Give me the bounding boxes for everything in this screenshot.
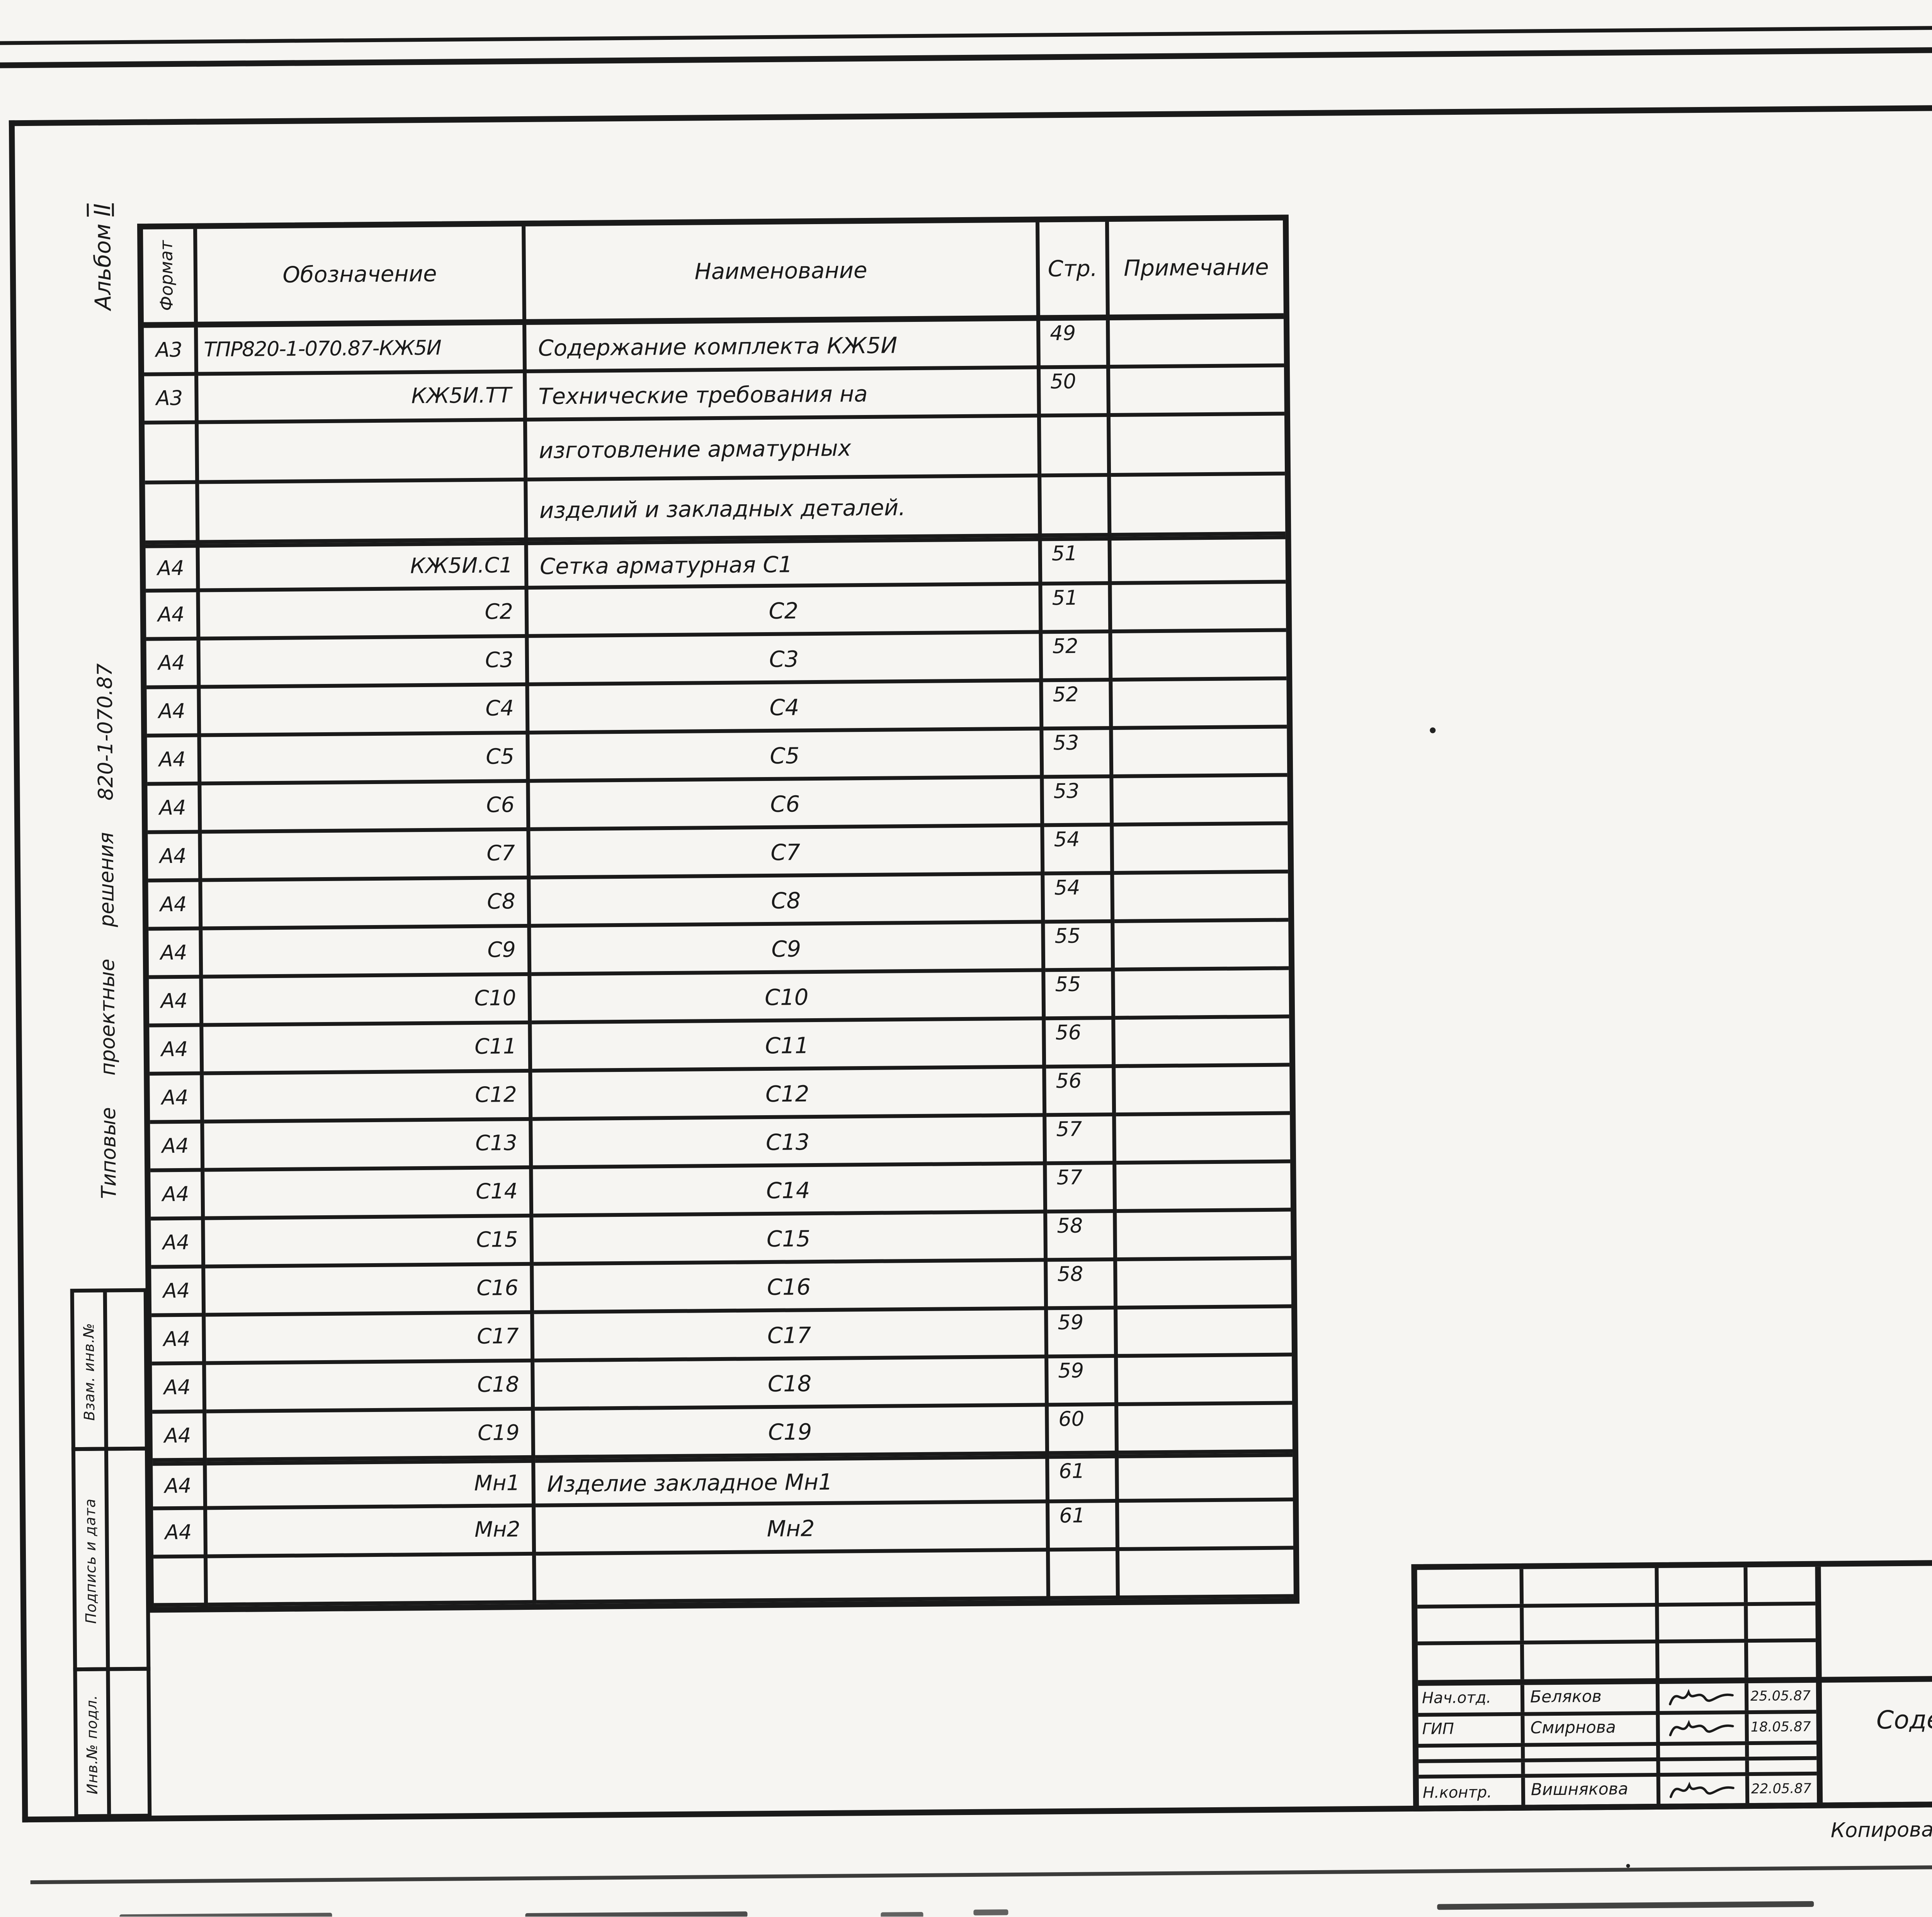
cell-name: С6	[530, 779, 1044, 831]
scan-artifact	[119, 1913, 332, 1917]
cell-designation: С4	[201, 686, 529, 737]
cell-page: 54	[1044, 875, 1114, 924]
cell-format: А4	[151, 1220, 205, 1269]
cell-designation: С13	[204, 1121, 533, 1172]
cell-name: С8	[531, 875, 1045, 927]
cell-name: С17	[534, 1310, 1048, 1362]
cell-name: С4	[529, 682, 1043, 734]
cell-format: А4	[151, 1317, 206, 1365]
cell-designation: С18	[206, 1362, 535, 1414]
cell-note	[1114, 873, 1288, 923]
signature-date	[1749, 1744, 1816, 1756]
stamp-title-cell: Содержание комплекта КЖ5И	[1822, 1678, 1932, 1802]
cell-page: 57	[1047, 1165, 1117, 1213]
cell-designation: ТПР820-1-070.87-КЖ5И	[198, 325, 527, 376]
signature-name: Смирнова	[1524, 1714, 1660, 1742]
header-format: Формат	[143, 229, 198, 328]
signature-mark	[1660, 1713, 1749, 1741]
cell-format	[153, 1558, 208, 1607]
cell-format: А4	[148, 882, 202, 931]
cell-name: Изделие закладное Мн1	[535, 1455, 1049, 1507]
title-stamp: ТПР820-1-070.87 -КЖ5И Нач.отд. Беляков 2…	[1411, 1555, 1932, 1812]
cell-designation: С14	[204, 1169, 533, 1220]
signature-name	[1525, 1745, 1660, 1758]
cell-note	[1116, 1163, 1291, 1213]
cell-format: А4	[147, 786, 202, 834]
cell-note	[1110, 319, 1284, 369]
scan-edge-line	[0, 25, 1932, 45]
cell-name: С13	[532, 1117, 1047, 1169]
cell-format: А4	[145, 544, 200, 593]
cell-format: А4	[146, 592, 200, 641]
cell-name	[536, 1551, 1050, 1604]
cell-format: А4	[149, 979, 203, 1027]
cell-page: 52	[1043, 682, 1113, 730]
cell-page: 54	[1044, 827, 1114, 875]
side-stamp-label: Инв.№ подл.	[83, 1679, 102, 1810]
signature-row: Нач.отд. Беляков 25.05.87	[1418, 1682, 1816, 1716]
cell-designation: С7	[202, 831, 531, 882]
signature-row: Н.контр. Вишнякова 22.05.87	[1419, 1776, 1817, 1806]
cell-designation: С5	[201, 735, 530, 786]
signature-role: ГИП	[1418, 1715, 1525, 1743]
divider	[104, 1451, 110, 1667]
cell-page: 56	[1046, 1068, 1116, 1117]
side-stamp-label: Подпись и дата	[81, 1459, 100, 1664]
cell-name: С7	[530, 827, 1044, 879]
cell-note	[1119, 1550, 1294, 1599]
cell-designation: С19	[206, 1411, 535, 1462]
cell-format: А4	[153, 1461, 207, 1510]
cell-note	[1112, 632, 1286, 682]
signature-date: 25.05.87	[1748, 1682, 1816, 1709]
signature-date: 22.05.87	[1749, 1776, 1817, 1803]
divider	[103, 1292, 108, 1447]
cell-note	[1114, 825, 1288, 875]
scan-artifact	[881, 1912, 923, 1917]
cell-format: А3	[144, 328, 198, 376]
sheet-bottom-edge	[31, 1860, 1932, 1884]
signature-row: ГИП Смирнова 18.05.87	[1418, 1713, 1816, 1747]
cell-note	[1113, 777, 1287, 827]
cell-designation: С17	[206, 1314, 534, 1365]
signature-name: Вишнякова	[1525, 1777, 1661, 1805]
cell-note	[1119, 1501, 1293, 1551]
cell-name: изделий и закладных деталей.	[527, 477, 1042, 541]
cell-page: 50	[1041, 369, 1111, 417]
cell-page: 59	[1048, 1310, 1118, 1358]
signature-mark	[1660, 1760, 1749, 1773]
cell-page: 53	[1044, 778, 1114, 827]
cell-designation: С3	[200, 638, 529, 689]
signature-role: Нач.отд.	[1418, 1684, 1525, 1712]
cell-note	[1111, 475, 1285, 537]
cell-note	[1112, 583, 1286, 633]
cell-format: А4	[148, 834, 202, 883]
cell-page: 60	[1049, 1406, 1119, 1455]
cell-format: А4	[151, 1268, 206, 1317]
cell-name: Технические требования на	[527, 369, 1041, 421]
cell-format: А4	[150, 1123, 204, 1172]
signature-mark	[1660, 1744, 1749, 1757]
signature-date	[1749, 1760, 1816, 1772]
header-note: Примечание	[1109, 220, 1284, 320]
cell-format: А4	[148, 930, 203, 979]
frame-left	[9, 120, 27, 1822]
cell-name: Сетка арматурная С1	[528, 537, 1042, 589]
header-name: Наименование	[526, 222, 1040, 325]
cell-designation: С16	[205, 1266, 534, 1317]
cell-format: А4	[146, 689, 201, 738]
stamp-empty-grid	[1417, 1567, 1816, 1680]
cell-note	[1117, 1260, 1291, 1310]
cell-name: С3	[529, 634, 1043, 686]
cell-page: 55	[1045, 923, 1115, 972]
signature-role	[1418, 1762, 1525, 1774]
cell-designation: Мн1	[207, 1459, 536, 1510]
cell-designation: С6	[201, 783, 530, 834]
cell-designation	[199, 422, 527, 484]
cell-designation: С8	[202, 879, 531, 930]
signature-role: Н.контр.	[1419, 1778, 1526, 1806]
cell-note	[1112, 680, 1287, 730]
cell-name: С18	[534, 1358, 1049, 1410]
cell-name: С14	[533, 1165, 1047, 1217]
cell-note	[1117, 1211, 1291, 1261]
cell-designation: С9	[202, 928, 531, 979]
scan-artifact	[1437, 1901, 1814, 1909]
side-stamp-inv: Инв.№ подл.	[73, 1667, 151, 1818]
cell-page	[1041, 417, 1111, 477]
signature-mark	[1660, 1682, 1749, 1710]
scan-viewport: 49 Альбом II Типовые проектные решения 8…	[0, 0, 1932, 1917]
cell-designation	[199, 481, 528, 544]
cell-page: 58	[1047, 1213, 1117, 1262]
side-stamp-label: Взам. инв.№	[80, 1300, 99, 1443]
cell-name: С5	[529, 730, 1044, 782]
cell-page: 51	[1042, 585, 1112, 634]
scan-artifact	[525, 1912, 747, 1917]
cell-page: 57	[1046, 1116, 1116, 1165]
cell-page: 56	[1046, 1020, 1116, 1068]
cell-designation: Мн2	[207, 1507, 536, 1558]
cell-note	[1119, 1453, 1293, 1503]
frame-top	[9, 100, 1932, 125]
cell-name: С12	[532, 1068, 1046, 1121]
ink-speck	[1430, 727, 1435, 733]
ink-speck	[1626, 1864, 1630, 1868]
cell-name: С15	[533, 1213, 1048, 1266]
cell-page: 49	[1040, 320, 1110, 369]
cell-designation: С11	[203, 1024, 532, 1075]
cell-page: 59	[1048, 1358, 1118, 1407]
cell-page	[1050, 1551, 1120, 1600]
cell-format: А4	[153, 1510, 207, 1558]
cell-note	[1118, 1356, 1292, 1406]
sheet-top-line	[0, 42, 1932, 67]
cell-format: А4	[147, 737, 201, 786]
cell-format: А4	[149, 1027, 204, 1075]
cell-name: Содержание комплекта КЖ5И	[526, 321, 1041, 373]
signature-role	[1418, 1746, 1525, 1759]
signature-mark	[1660, 1776, 1750, 1804]
cell-name: С9	[531, 924, 1045, 976]
album-label: Альбом II	[88, 172, 117, 342]
cell-name: изготовление арматурных	[527, 417, 1041, 481]
cell-format: А4	[152, 1413, 207, 1462]
header-designation: Обозначение	[197, 226, 526, 328]
cell-page: 51	[1042, 537, 1112, 585]
cell-name: Мн2	[536, 1503, 1050, 1555]
cell-designation: КЖ5И.С1	[199, 541, 528, 592]
header-page: Стр.	[1039, 222, 1110, 321]
cell-designation: КЖ5И.ТТ	[198, 373, 527, 424]
cell-name: С10	[531, 972, 1046, 1024]
series-label: Типовые проектные решения 820-1-070.87	[94, 566, 122, 1296]
cell-note	[1115, 1018, 1289, 1068]
cell-note	[1113, 728, 1287, 778]
album-roman-numeral: II	[89, 203, 116, 217]
cell-page: 53	[1043, 730, 1113, 779]
cell-name: С2	[528, 585, 1043, 638]
cell-note	[1111, 415, 1285, 477]
cell-page: 61	[1049, 1503, 1119, 1551]
cell-format: А4	[146, 641, 201, 689]
signature-grid: Нач.отд. Беляков 25.05.87 ГИП Смирнова 1…	[1418, 1682, 1817, 1806]
cell-name: С19	[535, 1407, 1049, 1459]
contents-table: Формат Обозначение Наименование Стр. При…	[137, 214, 1299, 1613]
cell-note	[1118, 1405, 1293, 1454]
cell-designation: С2	[200, 590, 529, 641]
stamp-designation-cell: ТПР820-1-070.87 -КЖ5И	[1821, 1561, 1932, 1677]
cell-note	[1115, 970, 1289, 1020]
cell-note	[1116, 1067, 1290, 1116]
side-stamp-vzam: Взам. инв.№	[70, 1288, 149, 1451]
cell-designation: С10	[203, 976, 532, 1027]
cell-note	[1110, 367, 1284, 417]
cell-designation	[207, 1556, 536, 1607]
cell-page: 61	[1049, 1454, 1119, 1503]
cell-note	[1114, 922, 1289, 971]
cell-format	[145, 484, 199, 544]
cell-page: 52	[1043, 633, 1112, 682]
cell-format: А3	[144, 376, 199, 425]
copied-label: Копировал	[1831, 1819, 1932, 1843]
signature-date: 18.05.87	[1748, 1713, 1816, 1740]
divider	[106, 1671, 111, 1814]
cell-page	[1041, 477, 1111, 537]
cell-name: С11	[532, 1020, 1046, 1072]
scan-artifact	[973, 1909, 1008, 1914]
side-stamp-podpis: Подпись и дата	[71, 1447, 151, 1672]
cell-designation: С12	[204, 1073, 532, 1124]
cell-page: 55	[1045, 971, 1115, 1020]
cell-page: 58	[1048, 1261, 1117, 1310]
cell-note	[1117, 1308, 1292, 1358]
cell-note	[1111, 535, 1286, 585]
signature-name: Беляков	[1524, 1683, 1660, 1711]
cell-designation: С15	[205, 1218, 534, 1269]
signature-name	[1525, 1761, 1660, 1774]
cell-format	[145, 424, 199, 485]
cell-name: С16	[534, 1262, 1048, 1314]
cell-format: А4	[152, 1365, 206, 1414]
cell-format: А4	[150, 1172, 205, 1220]
drawing-sheet: 49 Альбом II Типовые проектные решения 8…	[0, 0, 1932, 1917]
stamp-title-line1: Содержание комплекта	[1876, 1705, 1932, 1737]
cell-note	[1116, 1115, 1290, 1165]
cell-format: А4	[150, 1075, 204, 1124]
